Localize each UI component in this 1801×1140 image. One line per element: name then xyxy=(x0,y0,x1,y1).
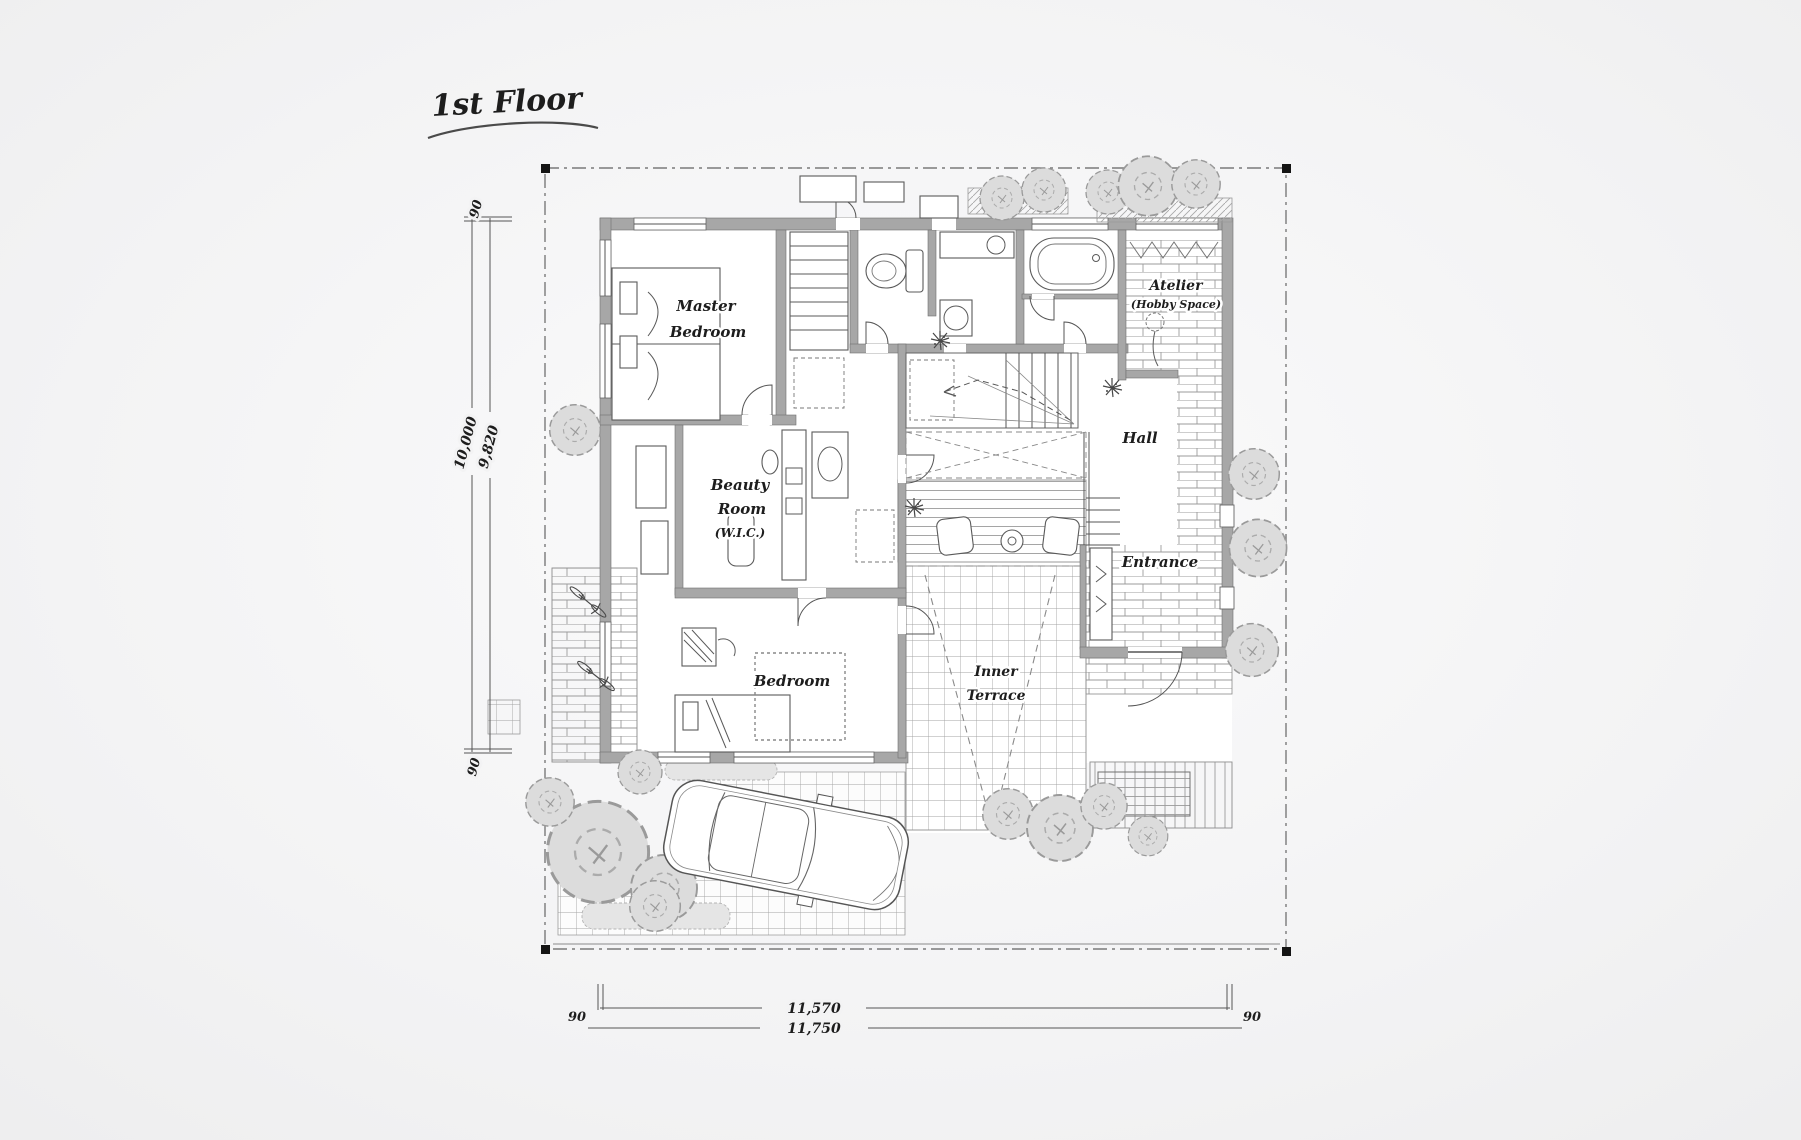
wardrobe-icon xyxy=(636,446,666,508)
dim-bottom-inner: 11,570 xyxy=(787,1001,841,1017)
boundary-corner-dot xyxy=(1282,164,1291,173)
dim-left-offset-bottom: 90 xyxy=(465,756,484,777)
double-bed-icon xyxy=(612,268,720,420)
tree-icon xyxy=(550,405,601,456)
chair-icon xyxy=(1042,516,1080,556)
boundary-corner-dot xyxy=(541,164,550,173)
tree-icon xyxy=(1081,783,1127,829)
title-underline xyxy=(428,123,598,138)
entrance-porch-bricks xyxy=(1086,658,1232,694)
label-master-bedroom: Master xyxy=(675,297,736,315)
tree-icon xyxy=(526,778,574,826)
page-title: 1st Floor xyxy=(431,81,585,124)
tree-icon xyxy=(618,750,662,794)
drawing-title: 1st Floor xyxy=(428,81,598,138)
west-brick-path xyxy=(552,568,637,762)
tree-icon xyxy=(1172,160,1220,208)
ac-unit-icon xyxy=(920,196,958,218)
dimension-bottom: 11,570 11,750 90 90 xyxy=(568,984,1261,1037)
shoe-cabinet-icon xyxy=(1090,548,1112,640)
label-beauty-room: Beauty xyxy=(710,476,771,494)
dim-left-inner: 9,820 xyxy=(476,423,503,470)
hall-corridor-bricks xyxy=(1177,376,1222,545)
label-inner-terrace: Terrace xyxy=(967,688,1026,704)
tree-icon xyxy=(1226,624,1279,677)
label-inner-terrace: Inner xyxy=(973,664,1019,680)
label-atelier: Atelier xyxy=(1148,278,1205,294)
label-master-bedroom: Bedroom xyxy=(669,323,747,341)
tree-icon xyxy=(1128,816,1168,856)
dim-bottom-offset-left: 90 xyxy=(568,1010,586,1025)
floor-plan-canvas: 1st Floor xyxy=(0,0,1801,1140)
tree-icon xyxy=(630,881,681,932)
small-pad xyxy=(488,700,520,734)
ac-unit-icon xyxy=(864,182,904,202)
tree-icon xyxy=(983,789,1034,840)
label-entrance: Entrance xyxy=(1121,553,1198,571)
tree-icon xyxy=(980,176,1024,220)
round-table-icon xyxy=(1001,530,1023,552)
stool-icon xyxy=(762,450,778,474)
boundary-corner-dot xyxy=(541,945,550,954)
label-bedroom: Bedroom xyxy=(753,672,831,690)
boundary-corner-dot xyxy=(1282,947,1291,956)
tree-icon xyxy=(1118,156,1177,215)
tree-icon xyxy=(1229,519,1286,576)
wardrobe-icon xyxy=(641,521,668,574)
dim-bottom-offset-right: 90 xyxy=(1243,1010,1261,1025)
ac-unit-icon xyxy=(800,176,856,202)
dim-bottom-total: 11,750 xyxy=(787,1021,841,1037)
chair-icon xyxy=(936,516,974,556)
stairs-icon xyxy=(906,353,1078,428)
tree-icon xyxy=(1229,449,1280,500)
label-atelier-sub: (Hobby Space) xyxy=(1131,298,1221,311)
label-beauty-room-wic: (W.I.C.) xyxy=(715,526,765,540)
bathtub-icon xyxy=(1030,238,1114,290)
label-beauty-room: Room xyxy=(717,500,766,518)
label-hall: Hall xyxy=(1121,429,1158,447)
dimension-left: 90 10,000 9,820 90 xyxy=(451,198,512,777)
tree-icon xyxy=(1022,168,1066,212)
